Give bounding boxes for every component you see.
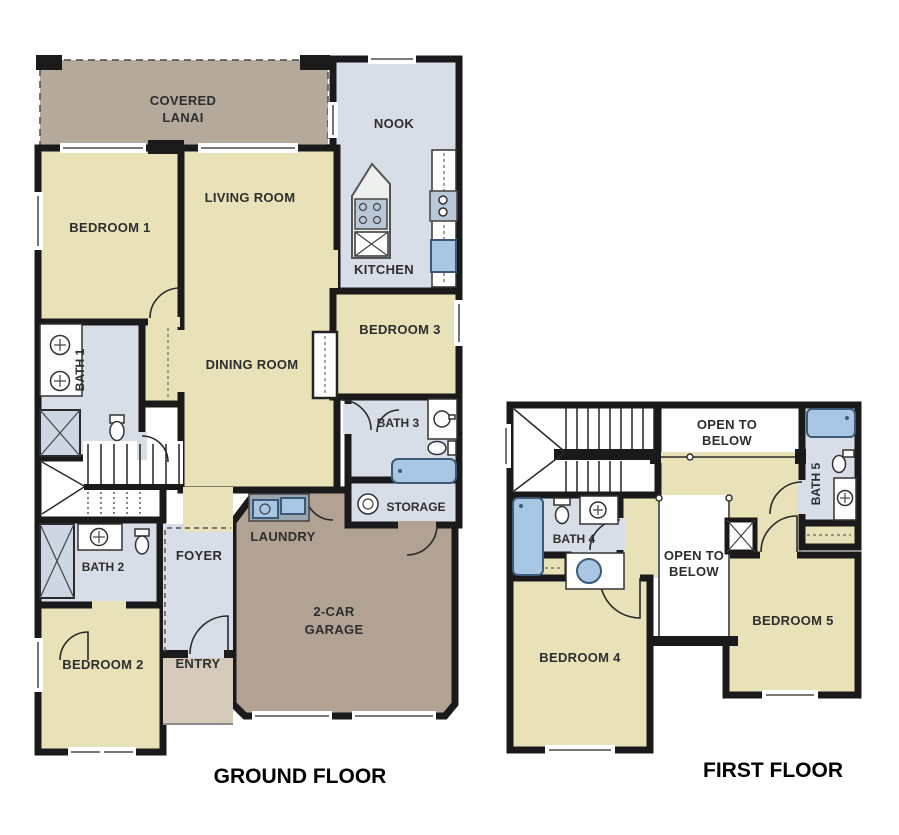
label-garage: 2-CAR [313, 604, 355, 619]
lanai-post [300, 55, 330, 70]
room-bedroom-3 [333, 291, 459, 397]
tub-drain [519, 504, 523, 508]
label-bath-2: BATH 2 [82, 560, 125, 574]
refrigerator [431, 240, 456, 272]
hall [620, 495, 658, 578]
label-open-to-below-top-2: BELOW [702, 433, 752, 448]
lanai-post [36, 55, 62, 70]
room-foyer [163, 524, 233, 654]
faucet [449, 415, 455, 419]
closet [313, 332, 337, 398]
sink [434, 411, 450, 427]
label-bedroom-5: BEDROOM 5 [752, 613, 833, 628]
label-entry: ENTRY [175, 656, 220, 671]
railing-post [656, 495, 662, 501]
label-bath-4: BATH 4 [553, 532, 596, 546]
water-heater [358, 494, 378, 514]
bathtub [807, 409, 855, 437]
toilet-tank [554, 498, 570, 505]
label-bath-1: BATH 1 [73, 348, 87, 391]
sink [577, 559, 601, 583]
toilet [110, 422, 124, 441]
wall-post [148, 140, 184, 154]
label-bedroom-3: BEDROOM 3 [359, 322, 440, 337]
label-storage: STORAGE [386, 500, 445, 514]
label-kitchen: KITCHEN [354, 262, 414, 277]
floor-plan-drawing: COVERED LANAI NOOK KITCHEN BEDROOM 1 LIV… [0, 0, 899, 835]
toilet [833, 456, 846, 473]
bedroom2-door-gap [92, 601, 126, 609]
label-open-to-below-mid-2: BELOW [669, 564, 719, 579]
label-open-to-below-top: OPEN TO [697, 417, 757, 432]
railing-post [726, 495, 732, 501]
bathtub [513, 498, 543, 575]
wall [650, 636, 738, 646]
toilet [556, 507, 569, 524]
toilet-tank [448, 441, 456, 455]
first-floor-title: FIRST FLOOR [703, 759, 843, 782]
label-nook: NOOK [374, 116, 415, 131]
railing-post [687, 454, 693, 460]
storage-door-gap [398, 521, 436, 529]
ground-floor-plan: COVERED LANAI NOOK KITCHEN BEDROOM 1 LIV… [33, 54, 464, 788]
walkin-closet [142, 322, 181, 404]
label-bath-3: BATH 3 [377, 416, 420, 430]
label-living-room: LIVING ROOM [205, 190, 296, 205]
label-covered-lanai: COVERED [150, 93, 216, 108]
label-dining-room: DINING ROOM [206, 357, 299, 372]
label-foyer: FOYER [176, 548, 223, 563]
label-bath-5: BATH 5 [809, 462, 823, 505]
bath3-door-gap [343, 404, 353, 434]
washer [253, 500, 278, 518]
label-garage-2: GARAGE [305, 622, 364, 637]
label-covered-lanai-2: LANAI [162, 110, 203, 125]
label-bedroom-1: BEDROOM 1 [69, 220, 150, 235]
stair-upper-flight-area [83, 441, 183, 487]
room-bedroom-2 [38, 605, 163, 752]
hall-opening [183, 487, 233, 532]
toilet-tank [135, 529, 149, 536]
tub-drain [398, 469, 402, 473]
wall-post [795, 449, 806, 464]
toilet [136, 536, 149, 554]
stove [355, 199, 387, 229]
dryer [281, 498, 305, 514]
first-floor-plan: OPEN TO BELOW BATH 5 BATH 4 OPEN TO BELO… [501, 405, 858, 782]
hall-opening [177, 330, 185, 392]
toilet [428, 442, 446, 455]
label-open-to-below-mid: OPEN TO [664, 548, 724, 563]
kitchen-opening [328, 250, 338, 288]
label-bedroom-4: BEDROOM 4 [539, 650, 621, 665]
tub-drain [845, 416, 849, 420]
bath5-door-gap [797, 480, 807, 514]
bedroom1-door-gap [148, 317, 180, 327]
bedroom5-door-gap [760, 551, 797, 560]
label-bedroom-2: BEDROOM 2 [62, 657, 143, 672]
label-laundry: LAUNDRY [250, 529, 315, 544]
toilet-tank [843, 450, 854, 457]
ground-floor-title: GROUND FLOOR [214, 765, 387, 788]
floor-plan-page: COVERED LANAI NOOK KITCHEN BEDROOM 1 LIV… [0, 0, 899, 835]
